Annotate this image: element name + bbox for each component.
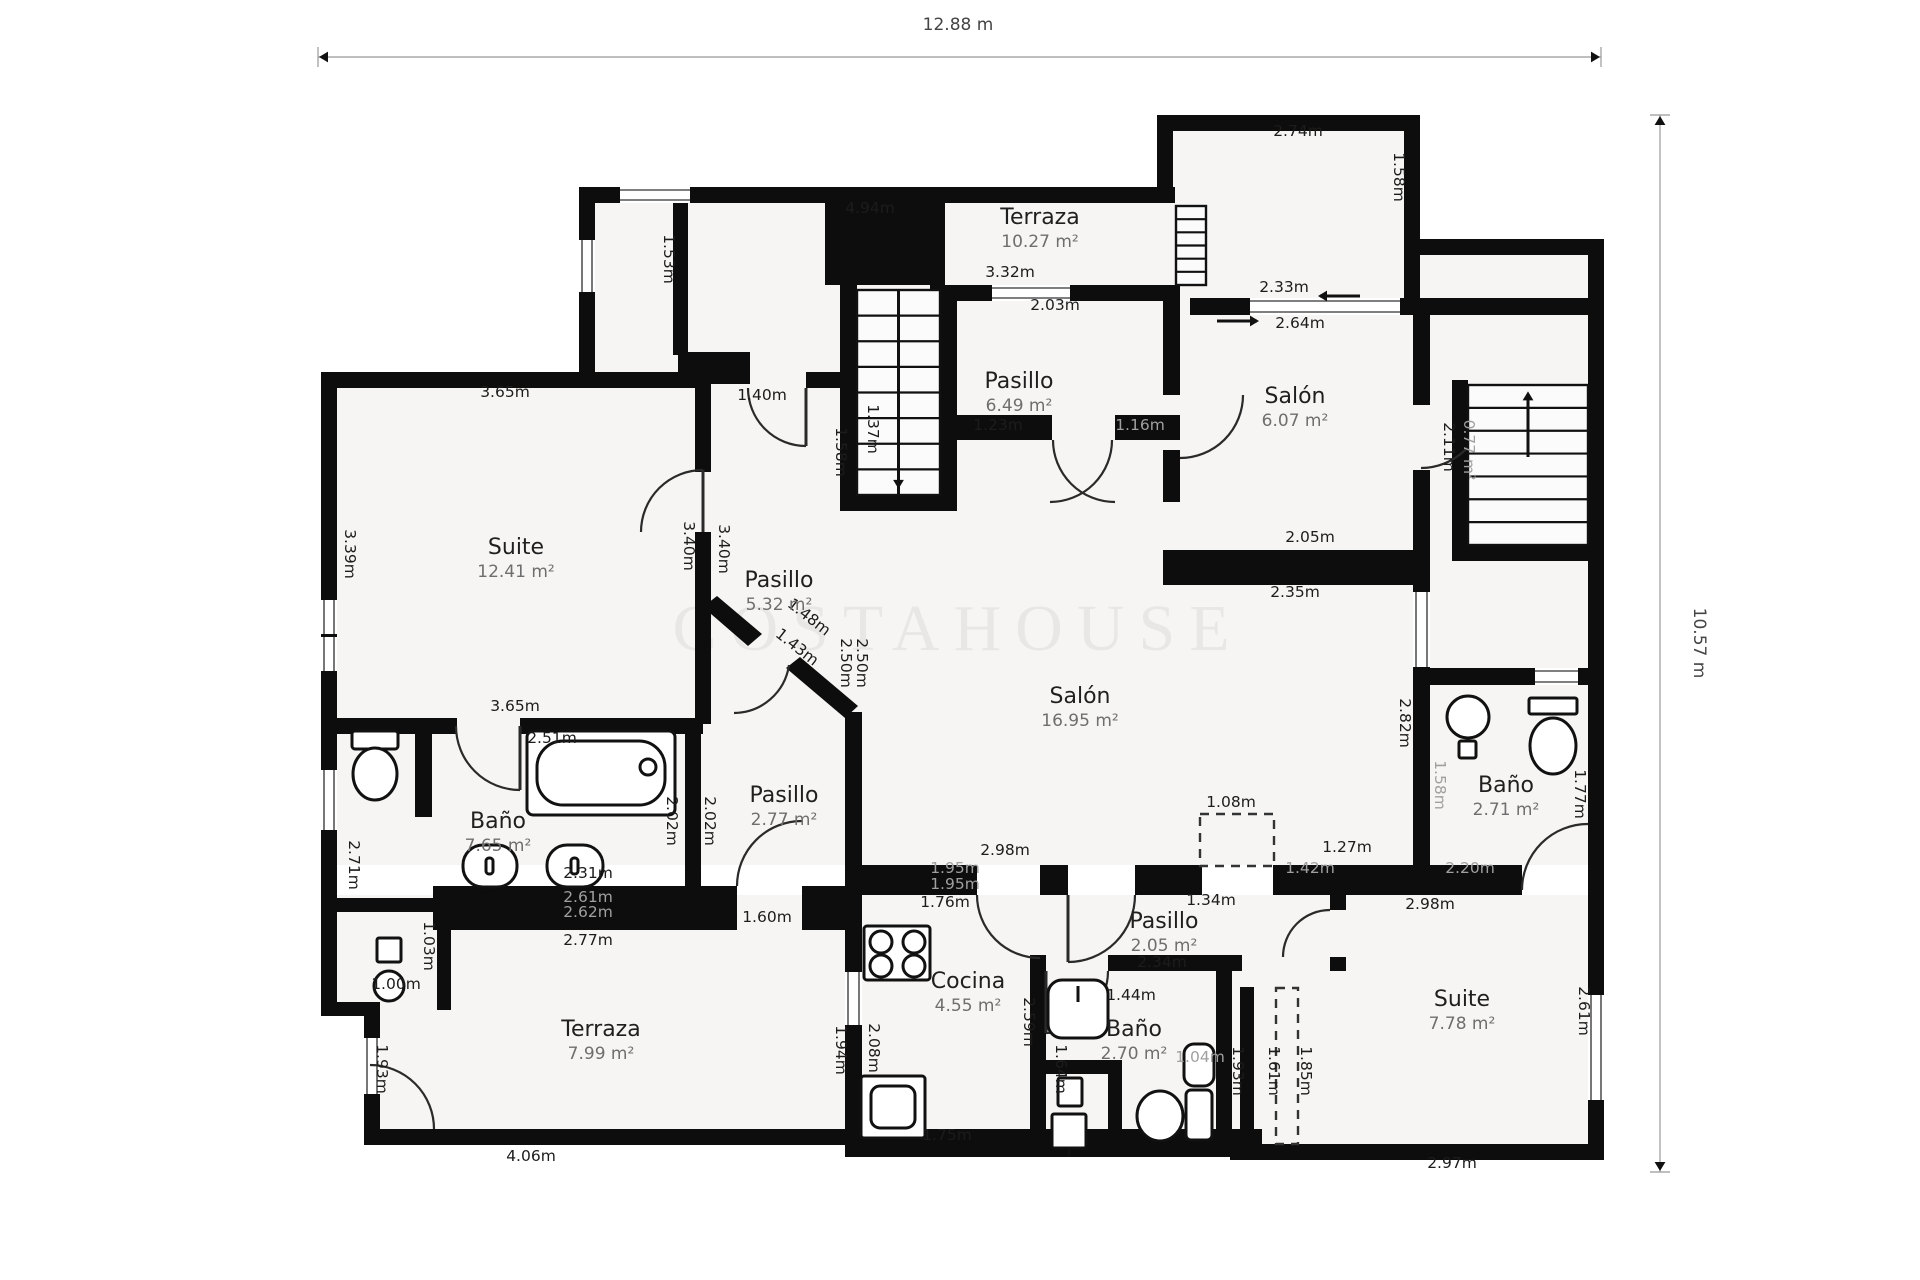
fixture [870, 955, 892, 977]
dim-line-top-arrow [1591, 52, 1600, 63]
dim-label: 1.04m [1175, 1048, 1225, 1066]
wall [1330, 957, 1346, 971]
wall [1404, 239, 1604, 255]
dim-label: 1.23m [973, 416, 1023, 434]
wall [337, 898, 449, 912]
dim-line-top-arrow [319, 52, 328, 63]
wall [1413, 315, 1430, 405]
fixture [903, 955, 925, 977]
fixture [353, 748, 397, 800]
dim-label: 0.77 m² [1460, 420, 1478, 481]
wall [695, 372, 711, 472]
wall [845, 892, 862, 972]
room-name-label: Baño [470, 809, 526, 834]
dim-label: 1.77m [1571, 769, 1589, 819]
dim-label: 1.44m [1106, 986, 1156, 1004]
fixture [486, 858, 493, 874]
wall [845, 712, 862, 892]
dim-label: 2.20m [1445, 859, 1495, 877]
room-name-label: Suite [1434, 987, 1490, 1012]
dim-label: 1.40m [737, 386, 787, 404]
dim-label: 2.77m [563, 931, 613, 949]
dim-label: 1.93m [373, 1044, 391, 1094]
room-name-label: Pasillo [749, 783, 818, 808]
dim-label: 2.05m [1285, 528, 1335, 546]
floor-area [337, 895, 364, 1013]
dim-label: 1.08m [1206, 793, 1256, 811]
dim-label: 2.59m [1020, 997, 1038, 1047]
room-area-label: 5.32 m² [746, 595, 813, 615]
fixture [871, 1086, 915, 1128]
room-area-label: 12.41 m² [477, 562, 554, 582]
wall [1404, 255, 1420, 298]
wall [1163, 550, 1420, 585]
dim-label: 2.50m [837, 638, 855, 688]
dim-label: 2.74m [1273, 122, 1323, 140]
floorplan-page: COSTAHOUSE2.74m4.94m1.58m1.53m3.32m2.03m… [0, 0, 1920, 1280]
room-area-label: 10.27 m² [1001, 232, 1078, 252]
wall [415, 733, 432, 817]
floor-area [364, 895, 1588, 1145]
room-area-label: 2.71 m² [1473, 800, 1540, 820]
room-area-label: 7.65 m² [465, 836, 532, 856]
dim-label: 4.06m [506, 1147, 556, 1165]
dim-label: 1.34m [1186, 891, 1236, 909]
wall [1163, 450, 1180, 502]
dim-label: 3.32m [985, 263, 1035, 281]
fixture [377, 938, 401, 962]
fixture [352, 731, 398, 749]
dim-label: 3.65m [480, 383, 530, 401]
dim-label: 1.60m [742, 908, 792, 926]
dim-label: 2.08m [865, 1023, 883, 1073]
room-name-label: Pasillo [744, 568, 813, 593]
room-name-label: Pasillo [984, 369, 1053, 394]
dim-label: 3.39m [341, 529, 359, 579]
dim-line-top-label: 12.88 m [923, 15, 994, 35]
wall [321, 892, 337, 1016]
room-name-label: Terraza [560, 1017, 640, 1042]
dim-label: 2.98m [1405, 895, 1455, 913]
dim-label: 2.35m [1270, 583, 1320, 601]
wall [806, 372, 842, 388]
dim-label: 1.27m [1322, 838, 1372, 856]
room-name-label: Baño [1106, 1017, 1162, 1042]
dim-label: 2.02m [663, 796, 681, 846]
dim-label: 4.94m [845, 199, 895, 217]
fixture [1447, 696, 1489, 738]
dim-label: 1.85m [1297, 1046, 1315, 1096]
dim-label: 1.58m [1390, 152, 1408, 202]
wall [685, 733, 701, 888]
dim-label: 2.82m [1396, 698, 1414, 748]
room-area-label: 6.49 m² [986, 396, 1053, 416]
room-area-label: 7.99 m² [568, 1044, 635, 1064]
wall [678, 352, 750, 384]
fixture [640, 759, 656, 775]
fixture [1052, 1114, 1086, 1148]
room-area-label: 7.78 m² [1429, 1014, 1496, 1034]
room-area-label: 2.77 m² [751, 810, 818, 830]
dim-line-right-label: 10.57 m [1689, 608, 1709, 679]
room-name-label: Baño [1478, 773, 1534, 798]
dim-label: 1.00m [371, 975, 421, 993]
dim-label: 1.94m [832, 1025, 850, 1075]
dim-label: 1.61m [1265, 1046, 1283, 1096]
dim-label: 2.51m [527, 729, 577, 747]
wall [940, 285, 957, 507]
dim-label: 1.76m [920, 893, 970, 911]
dim-label: 2.50m [853, 638, 871, 688]
dim-label: 1.42m [1285, 859, 1335, 877]
dim-label: 2.31m [563, 864, 613, 882]
dim-label: 1.58m [832, 427, 850, 477]
floor-area [1173, 131, 1404, 301]
dim-label: 2.02m [701, 796, 719, 846]
dim-label: 2.97m [1427, 1154, 1477, 1172]
room-area-label: 2.05 m² [1131, 936, 1198, 956]
room-area-label: 6.07 m² [1262, 411, 1329, 431]
room-area-label: 2.70 m² [1101, 1044, 1168, 1064]
wall [1163, 285, 1180, 395]
wall [1413, 685, 1430, 890]
wall [1190, 298, 1250, 315]
dim-label: 1.03m [420, 921, 438, 971]
dim-line-right-arrow [1655, 1162, 1666, 1171]
floorplan: COSTAHOUSE2.74m4.94m1.58m1.53m3.32m2.03m… [0, 0, 1920, 1280]
dim-label: 1.53m [660, 234, 678, 284]
fixture [903, 931, 925, 953]
wall [1230, 1144, 1604, 1160]
dim-label: 2.61m [1575, 986, 1593, 1036]
wall [364, 1129, 862, 1145]
room-name-label: Terraza [999, 205, 1079, 230]
room-name-label: Cocina [931, 969, 1005, 994]
dim-label: 1.16m [1115, 416, 1165, 434]
fixture [1459, 741, 1476, 758]
wall [1400, 298, 1604, 315]
room-name-label: Salón [1050, 684, 1111, 709]
dim-label: 2.64m [1275, 314, 1325, 332]
dim-label: 3.40m [680, 521, 698, 571]
dim-label: 2.11m [1440, 422, 1458, 472]
wall [840, 495, 957, 511]
dim-label: 1.58m [1431, 760, 1449, 810]
dim-label: 2.62m [563, 903, 613, 921]
room-name-label: Salón [1265, 384, 1326, 409]
fixture [1137, 1091, 1183, 1141]
fixture [1186, 1090, 1212, 1140]
dim-label: 2.03m [1030, 296, 1080, 314]
dim-label: 2.71m [345, 840, 363, 890]
dim-label: 1.75m [922, 1126, 972, 1144]
dim-label: 3.65m [490, 697, 540, 715]
fixture [870, 931, 892, 953]
wall [1330, 895, 1346, 910]
wall [1040, 865, 1068, 895]
fixture [1530, 718, 1576, 774]
dim-label: 3.40m [715, 524, 733, 574]
dim-label: 1.95m [930, 875, 980, 893]
room-area-label: 4.55 m² [935, 996, 1002, 1016]
room-area-label: 16.95 m² [1041, 711, 1118, 731]
dim-label: 1.64m [1052, 1044, 1070, 1094]
room-name-label: Suite [488, 535, 544, 560]
dim-label: 1.93m [1229, 1046, 1247, 1096]
dim-label: 2.33m [1259, 278, 1309, 296]
dim-line-right-arrow [1655, 116, 1666, 125]
room-name-label: Pasillo [1129, 909, 1198, 934]
dim-label: 1.37m [864, 404, 882, 454]
fixture [1529, 698, 1577, 714]
wall [1452, 545, 1604, 561]
dim-label: 2.98m [980, 841, 1030, 859]
